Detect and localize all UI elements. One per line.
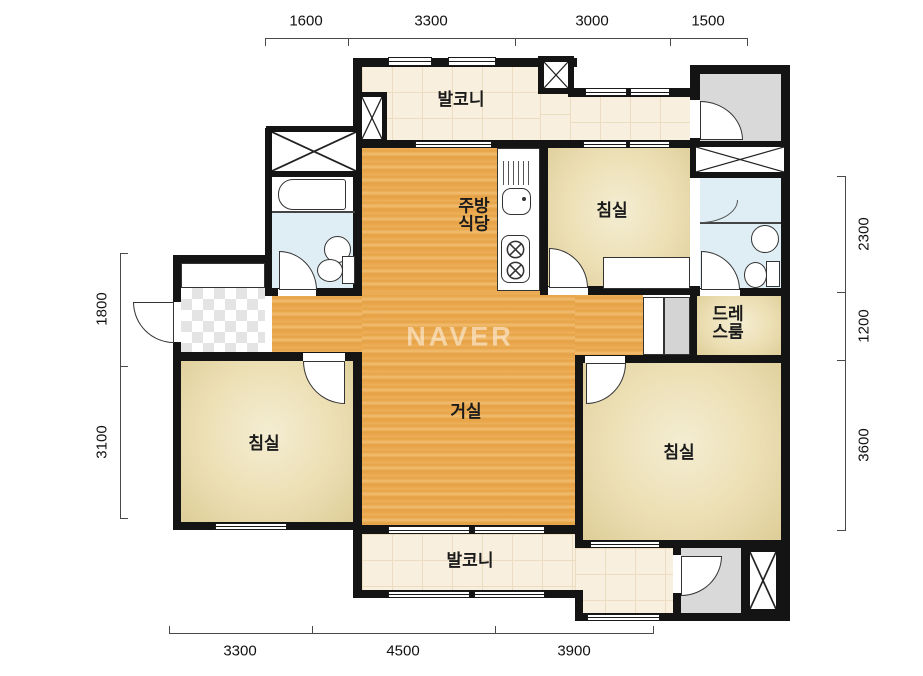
wall bbox=[690, 65, 790, 74]
bedroom-right-label: 침실 bbox=[663, 444, 694, 462]
door-opening bbox=[548, 287, 588, 295]
dimension-tick bbox=[515, 38, 516, 46]
dimension-bottom-3: 3900 bbox=[557, 643, 590, 660]
partition-line bbox=[700, 222, 781, 224]
door-opening bbox=[278, 289, 316, 296]
dimension-line bbox=[845, 176, 846, 531]
bedroom-top-label: 침실 bbox=[596, 202, 627, 220]
wall bbox=[353, 352, 362, 534]
dimension-bottom-1: 3300 bbox=[223, 643, 256, 660]
entry-corridor-floor bbox=[272, 295, 362, 353]
dimension-tick bbox=[837, 530, 845, 531]
wall bbox=[353, 525, 362, 598]
dimension-top-1: 1600 bbox=[289, 13, 322, 30]
living-room-label: 거실 bbox=[450, 403, 481, 421]
dimension-right-3: 3600 bbox=[856, 428, 873, 461]
hallway-floor bbox=[575, 295, 643, 355]
kitchen-label: 주방 식당 bbox=[458, 198, 489, 235]
duct-shaft-x-icon bbox=[744, 546, 782, 615]
window bbox=[587, 614, 660, 621]
dimension-tick bbox=[837, 360, 845, 361]
dimension-tick bbox=[747, 38, 748, 46]
window bbox=[474, 591, 545, 598]
stove-burner-icon bbox=[506, 240, 525, 259]
dimension-line bbox=[265, 38, 748, 39]
partition-line bbox=[272, 211, 355, 213]
wall bbox=[781, 65, 790, 363]
dimension-line bbox=[169, 633, 654, 634]
window bbox=[585, 88, 627, 96]
dimension-tick bbox=[837, 176, 845, 177]
toilet-tank bbox=[342, 256, 355, 284]
closet bbox=[643, 297, 664, 355]
dimension-tick bbox=[670, 38, 671, 46]
door-opening bbox=[673, 555, 681, 593]
washbasin bbox=[751, 225, 779, 253]
dimension-left-1: 1800 bbox=[94, 292, 111, 325]
wall bbox=[173, 255, 265, 263]
window bbox=[388, 526, 470, 534]
duct-shaft-x-icon bbox=[266, 126, 362, 177]
dimension-tick bbox=[653, 626, 654, 634]
wall bbox=[173, 352, 181, 530]
drainboard bbox=[503, 161, 530, 185]
dimension-top-4: 1500 bbox=[691, 13, 724, 30]
window bbox=[629, 141, 670, 148]
dimension-top-2: 3300 bbox=[414, 13, 447, 30]
window bbox=[415, 141, 492, 148]
dimension-bottom-2: 4500 bbox=[386, 643, 419, 660]
door-opening bbox=[690, 100, 700, 138]
dimension-tick bbox=[348, 38, 349, 46]
balcony-bottom-floor-right bbox=[575, 548, 673, 614]
faucet-dot bbox=[522, 197, 526, 201]
door-opening bbox=[700, 289, 740, 296]
duct-shaft-x-icon bbox=[538, 56, 574, 94]
wardrobe bbox=[664, 297, 690, 355]
dimension-tick bbox=[120, 366, 128, 367]
balcony-top-floor-mid bbox=[540, 88, 570, 142]
balcony-top-label: 발코니 bbox=[438, 91, 485, 109]
window bbox=[388, 591, 470, 598]
shoe-closet bbox=[181, 263, 265, 288]
bedroom-left-label: 침실 bbox=[248, 435, 279, 453]
dimension-tick bbox=[120, 253, 128, 254]
kitchen-counter bbox=[497, 148, 540, 291]
dimension-tick bbox=[169, 626, 170, 634]
front-door-opening bbox=[173, 302, 181, 342]
dimension-tick bbox=[312, 626, 313, 634]
wall bbox=[781, 355, 790, 621]
duct-shaft-x-icon bbox=[690, 141, 790, 178]
toilet-bowl bbox=[317, 259, 343, 282]
balcony-bottom-label: 발코니 bbox=[447, 552, 494, 570]
front-door-arc bbox=[133, 302, 174, 343]
window bbox=[630, 88, 670, 96]
balcony-top-floor-right bbox=[570, 96, 690, 142]
dimension-right-2: 1200 bbox=[856, 309, 873, 342]
door-opening bbox=[303, 353, 345, 361]
bathtub bbox=[278, 179, 346, 210]
toilet-bowl bbox=[744, 262, 767, 288]
entrance-floor bbox=[181, 288, 265, 354]
floor-plan: 발코니 주방 식당 침실 드레 스룸 거실 침실 침실 발코니 NAVER 16… bbox=[0, 0, 923, 676]
window bbox=[448, 57, 496, 66]
dressroom-label: 드레 스룸 bbox=[712, 306, 743, 343]
dimension-tick bbox=[120, 518, 128, 519]
dimension-left-2: 3100 bbox=[94, 425, 111, 458]
dimension-top-3: 3000 bbox=[575, 13, 608, 30]
kitchen-sink bbox=[502, 188, 531, 215]
window bbox=[388, 57, 432, 66]
window bbox=[474, 526, 545, 534]
dimension-tick bbox=[837, 292, 845, 293]
window bbox=[215, 523, 287, 530]
dimension-line bbox=[120, 253, 121, 519]
window bbox=[590, 541, 660, 548]
bed bbox=[603, 257, 690, 289]
toilet-tank bbox=[766, 261, 780, 287]
stove-burner-icon bbox=[506, 261, 525, 280]
wall bbox=[575, 355, 583, 548]
wall bbox=[690, 296, 697, 357]
dimension-tick bbox=[265, 38, 266, 46]
door-opening bbox=[585, 356, 625, 363]
wall bbox=[540, 140, 548, 295]
dimension-tick bbox=[495, 626, 496, 634]
window bbox=[583, 141, 627, 148]
naver-watermark: NAVER bbox=[406, 322, 514, 353]
dimension-right-1: 2300 bbox=[856, 217, 873, 250]
